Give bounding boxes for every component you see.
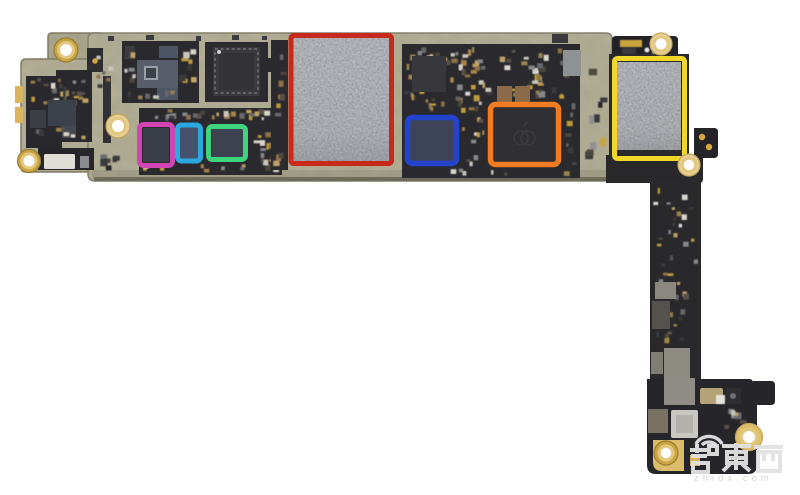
svg-text:zhidx.com: zhidx.com	[694, 473, 773, 484]
